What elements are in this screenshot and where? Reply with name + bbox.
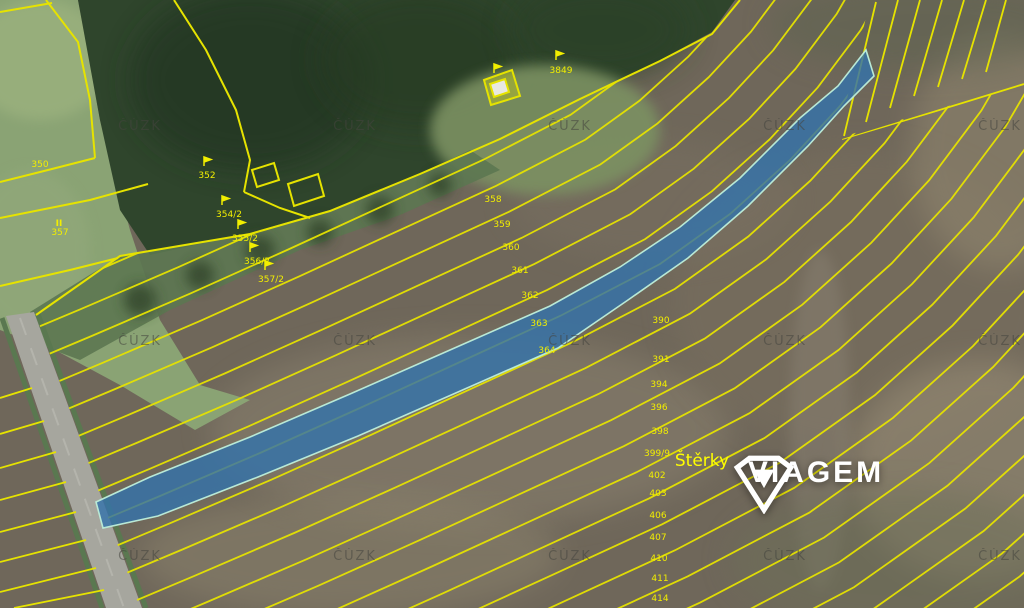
tree <box>366 196 394 224</box>
cuzk-watermark: ČÚZK <box>548 333 592 349</box>
parcel-number: 407 <box>649 533 666 543</box>
parcel-number: 394 <box>650 380 667 390</box>
parcel-number: 411 <box>651 574 668 584</box>
parcel-number: 352 <box>198 171 215 181</box>
parcel-number: 398 <box>651 427 668 437</box>
cuzk-watermark: ČÚZK <box>118 548 162 564</box>
parcel-number: 410 <box>650 554 667 564</box>
parcel-number: 396 <box>650 403 667 413</box>
parcel-number: 360 <box>502 243 519 253</box>
viagem-logo: VIAGEM <box>731 452 901 490</box>
parcel-number: 362 <box>521 291 538 301</box>
parcel-number: 357/2 <box>258 275 284 285</box>
cuzk-watermark: ČÚZK <box>978 548 1022 564</box>
parcel-number: 355/2 <box>232 234 258 244</box>
parcel-number: 406 <box>649 511 666 521</box>
cuzk-watermark: ČÚZK <box>548 118 592 134</box>
tree <box>307 219 333 245</box>
cuzk-watermark: ČÚZK <box>763 333 807 349</box>
cuzk-watermark: ČÚZK <box>118 333 162 349</box>
parcel-number: 358 <box>484 195 501 205</box>
map-viewport: 350352354/2355/2356/2357/235738493583593… <box>0 0 1024 608</box>
parcel-number: 354/2 <box>216 210 242 220</box>
parcel-number: 361 <box>511 266 528 276</box>
parcel-number: 390 <box>652 316 669 326</box>
cadastral-map-canvas: 350352354/2355/2356/2357/235738493583593… <box>0 0 1024 608</box>
region-name-label: Štěrky <box>675 449 729 471</box>
cuzk-watermark: ČÚZK <box>333 118 377 134</box>
cuzk-watermark: ČÚZK <box>548 548 592 564</box>
parcel-number: 414 <box>651 594 668 604</box>
parcel-number: 3849 <box>550 66 573 76</box>
parcel-number: 356/2 <box>244 257 270 267</box>
parcel-number: 402 <box>648 471 665 481</box>
parcel-number: 403 <box>649 489 666 499</box>
parcel-number: 399/9 <box>644 449 670 459</box>
parcel-number: 350 <box>31 160 48 170</box>
cuzk-watermark: ČÚZK <box>118 118 162 134</box>
cuzk-watermark: ČÚZK <box>978 333 1022 349</box>
cuzk-watermark: ČÚZK <box>333 548 377 564</box>
cuzk-watermark: ČÚZK <box>763 118 807 134</box>
parcel-number: 363 <box>530 319 547 329</box>
cuzk-watermark: ČÚZK <box>333 333 377 349</box>
viagem-gem-icon <box>731 452 797 514</box>
cuzk-watermark: ČÚZK <box>978 118 1022 134</box>
gem-facet <box>754 470 775 489</box>
parcel-number: 391 <box>652 355 669 365</box>
parcel-number: 357 <box>51 228 68 238</box>
double-bar-symbol: II <box>56 219 63 229</box>
cuzk-watermark: ČÚZK <box>763 548 807 564</box>
parcel-number: 359 <box>493 220 510 230</box>
